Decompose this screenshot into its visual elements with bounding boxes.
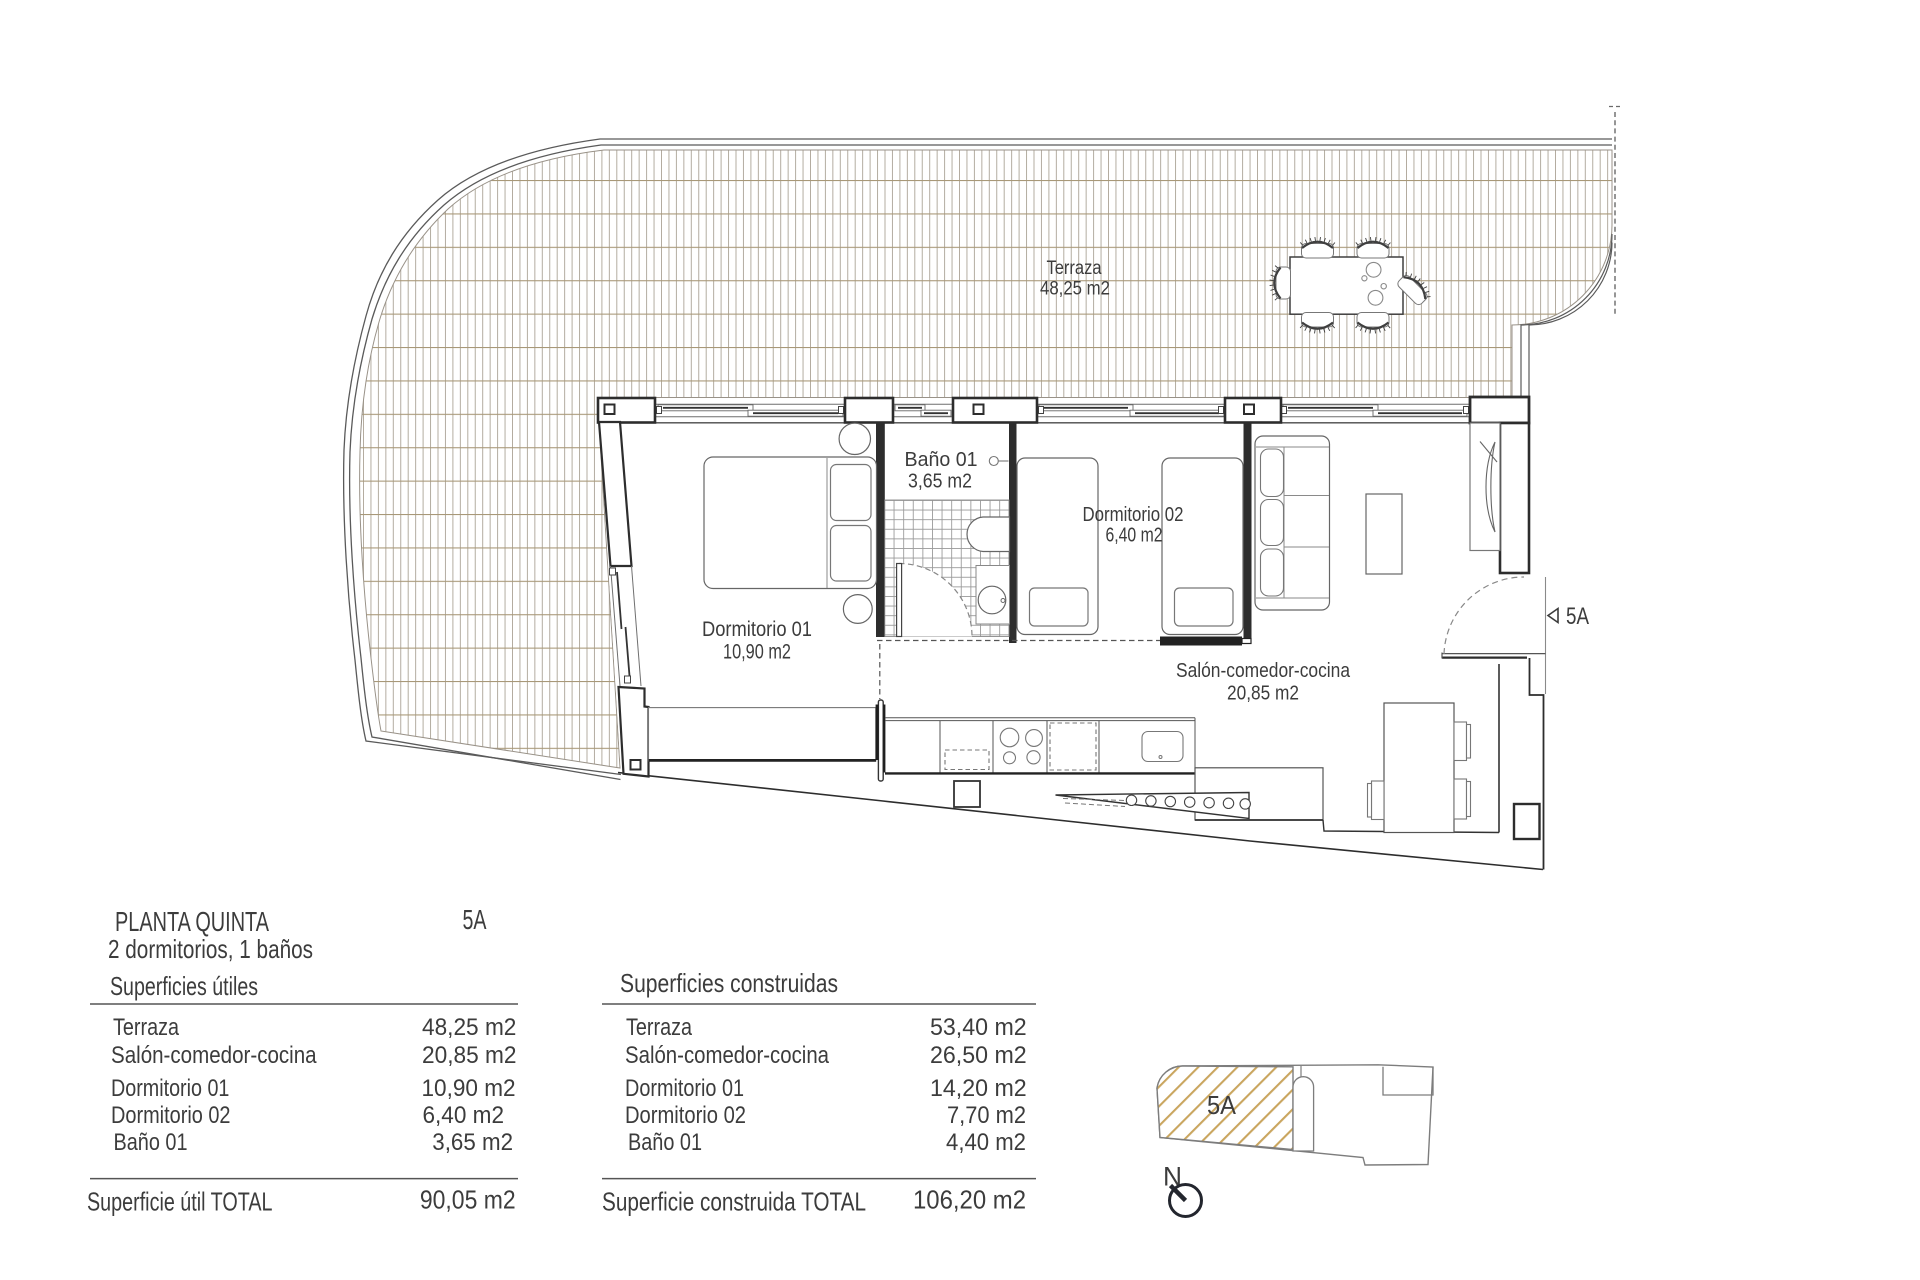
- svg-text:Dormitorio 01: Dormitorio 01: [625, 1075, 744, 1102]
- svg-text:10,90 m2: 10,90 m2: [422, 1075, 516, 1102]
- svg-text:3,65 m2: 3,65 m2: [908, 471, 972, 493]
- svg-text:20,85 m2: 20,85 m2: [1227, 683, 1299, 705]
- svg-text:5A: 5A: [1566, 603, 1589, 630]
- svg-text:20,85 m2: 20,85 m2: [422, 1042, 517, 1069]
- svg-text:PLANTA QUINTA: PLANTA QUINTA: [115, 906, 269, 937]
- svg-text:2 dormitorios, 1 baños: 2 dormitorios, 1 baños: [108, 934, 313, 964]
- svg-text:48,25 m2: 48,25 m2: [422, 1014, 516, 1041]
- svg-text:Dormitorio 02: Dormitorio 02: [111, 1102, 231, 1129]
- svg-text:Terraza: Terraza: [626, 1014, 693, 1041]
- svg-text:26,50 m2: 26,50 m2: [930, 1042, 1027, 1069]
- svg-text:14,20 m2: 14,20 m2: [930, 1075, 1027, 1102]
- svg-text:Baño 01: Baño 01: [114, 1129, 188, 1156]
- svg-text:Dormitorio 01: Dormitorio 01: [702, 618, 812, 641]
- svg-text:Dormitorio 01: Dormitorio 01: [111, 1075, 229, 1102]
- svg-text:Terraza: Terraza: [1047, 258, 1102, 279]
- svg-text:Salón-comedor-cocina: Salón-comedor-cocina: [111, 1042, 317, 1069]
- svg-text:Dormitorio 02: Dormitorio 02: [1083, 504, 1184, 526]
- svg-text:3,65 m2: 3,65 m2: [432, 1129, 513, 1156]
- svg-text:Salón-comedor-cocina: Salón-comedor-cocina: [625, 1042, 830, 1069]
- svg-text:7,70 m2: 7,70 m2: [947, 1102, 1026, 1129]
- svg-text:5A: 5A: [1207, 1090, 1237, 1120]
- svg-text:4,40 m2: 4,40 m2: [946, 1129, 1026, 1156]
- svg-text:48,25 m2: 48,25 m2: [1040, 279, 1110, 300]
- svg-text:Salón-comedor-cocina: Salón-comedor-cocina: [1176, 660, 1351, 682]
- svg-text:Superficie construida TOTAL: Superficie construida TOTAL: [602, 1187, 866, 1217]
- svg-text:Dormitorio 02: Dormitorio 02: [625, 1102, 746, 1129]
- svg-text:106,20 m2: 106,20 m2: [913, 1185, 1026, 1215]
- svg-text:Superficies construidas: Superficies construidas: [620, 968, 838, 998]
- svg-text:6,40 m2: 6,40 m2: [1106, 525, 1163, 547]
- svg-text:6,40 m2: 6,40 m2: [423, 1102, 505, 1129]
- svg-text:Baño 01: Baño 01: [905, 449, 978, 471]
- svg-text:Superficies útiles: Superficies útiles: [110, 971, 258, 1001]
- svg-text:5A: 5A: [463, 904, 487, 935]
- svg-text:Superficie útil TOTAL: Superficie útil TOTAL: [87, 1187, 273, 1217]
- svg-text:53,40 m2: 53,40 m2: [930, 1014, 1027, 1041]
- svg-text:Terraza: Terraza: [113, 1014, 180, 1041]
- svg-text:Baño 01: Baño 01: [628, 1129, 702, 1156]
- svg-text:10,90 m2: 10,90 m2: [723, 641, 791, 664]
- svg-text:90,05 m2: 90,05 m2: [420, 1185, 516, 1215]
